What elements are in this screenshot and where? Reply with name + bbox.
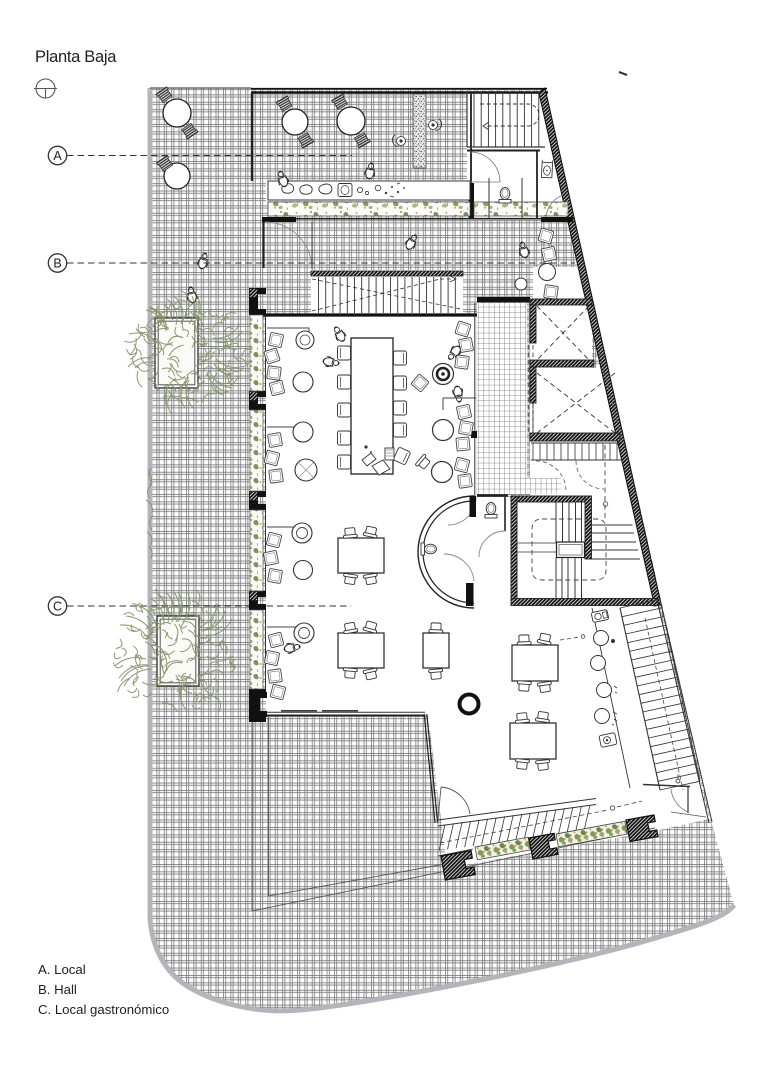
svg-text:Planta Baja: Planta Baja bbox=[35, 48, 117, 66]
svg-text:A: A bbox=[53, 149, 62, 163]
svg-text:A. Local: A. Local bbox=[38, 962, 86, 977]
svg-text:B: B bbox=[53, 257, 61, 271]
svg-text:C. Local gastronómico: C. Local gastronómico bbox=[38, 1002, 169, 1017]
svg-text:C: C bbox=[53, 600, 62, 614]
svg-text:B. Hall: B. Hall bbox=[38, 982, 77, 997]
